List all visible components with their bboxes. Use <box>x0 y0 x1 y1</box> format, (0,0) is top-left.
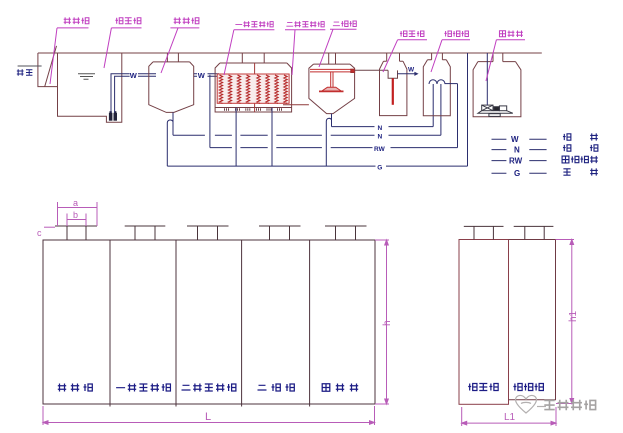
svg-text:W: W <box>198 71 206 80</box>
svg-text:N: N <box>378 134 383 141</box>
svg-text:W: W <box>408 67 415 74</box>
svg-text:b: b <box>73 210 78 220</box>
svg-text:RW: RW <box>509 157 523 166</box>
svg-text:c: c <box>37 228 42 238</box>
svg-text:h: h <box>382 320 393 326</box>
svg-text:W: W <box>130 71 138 80</box>
svg-text:L1: L1 <box>504 412 516 423</box>
svg-text:L: L <box>205 411 211 423</box>
svg-text:G: G <box>377 164 382 171</box>
svg-text:RW: RW <box>374 146 386 153</box>
svg-text:N: N <box>514 146 520 155</box>
svg-text:W: W <box>511 135 519 144</box>
svg-text:N: N <box>378 125 383 132</box>
svg-text:G: G <box>514 169 520 178</box>
svg-text:h1: h1 <box>568 310 579 322</box>
svg-text:a: a <box>73 198 78 208</box>
